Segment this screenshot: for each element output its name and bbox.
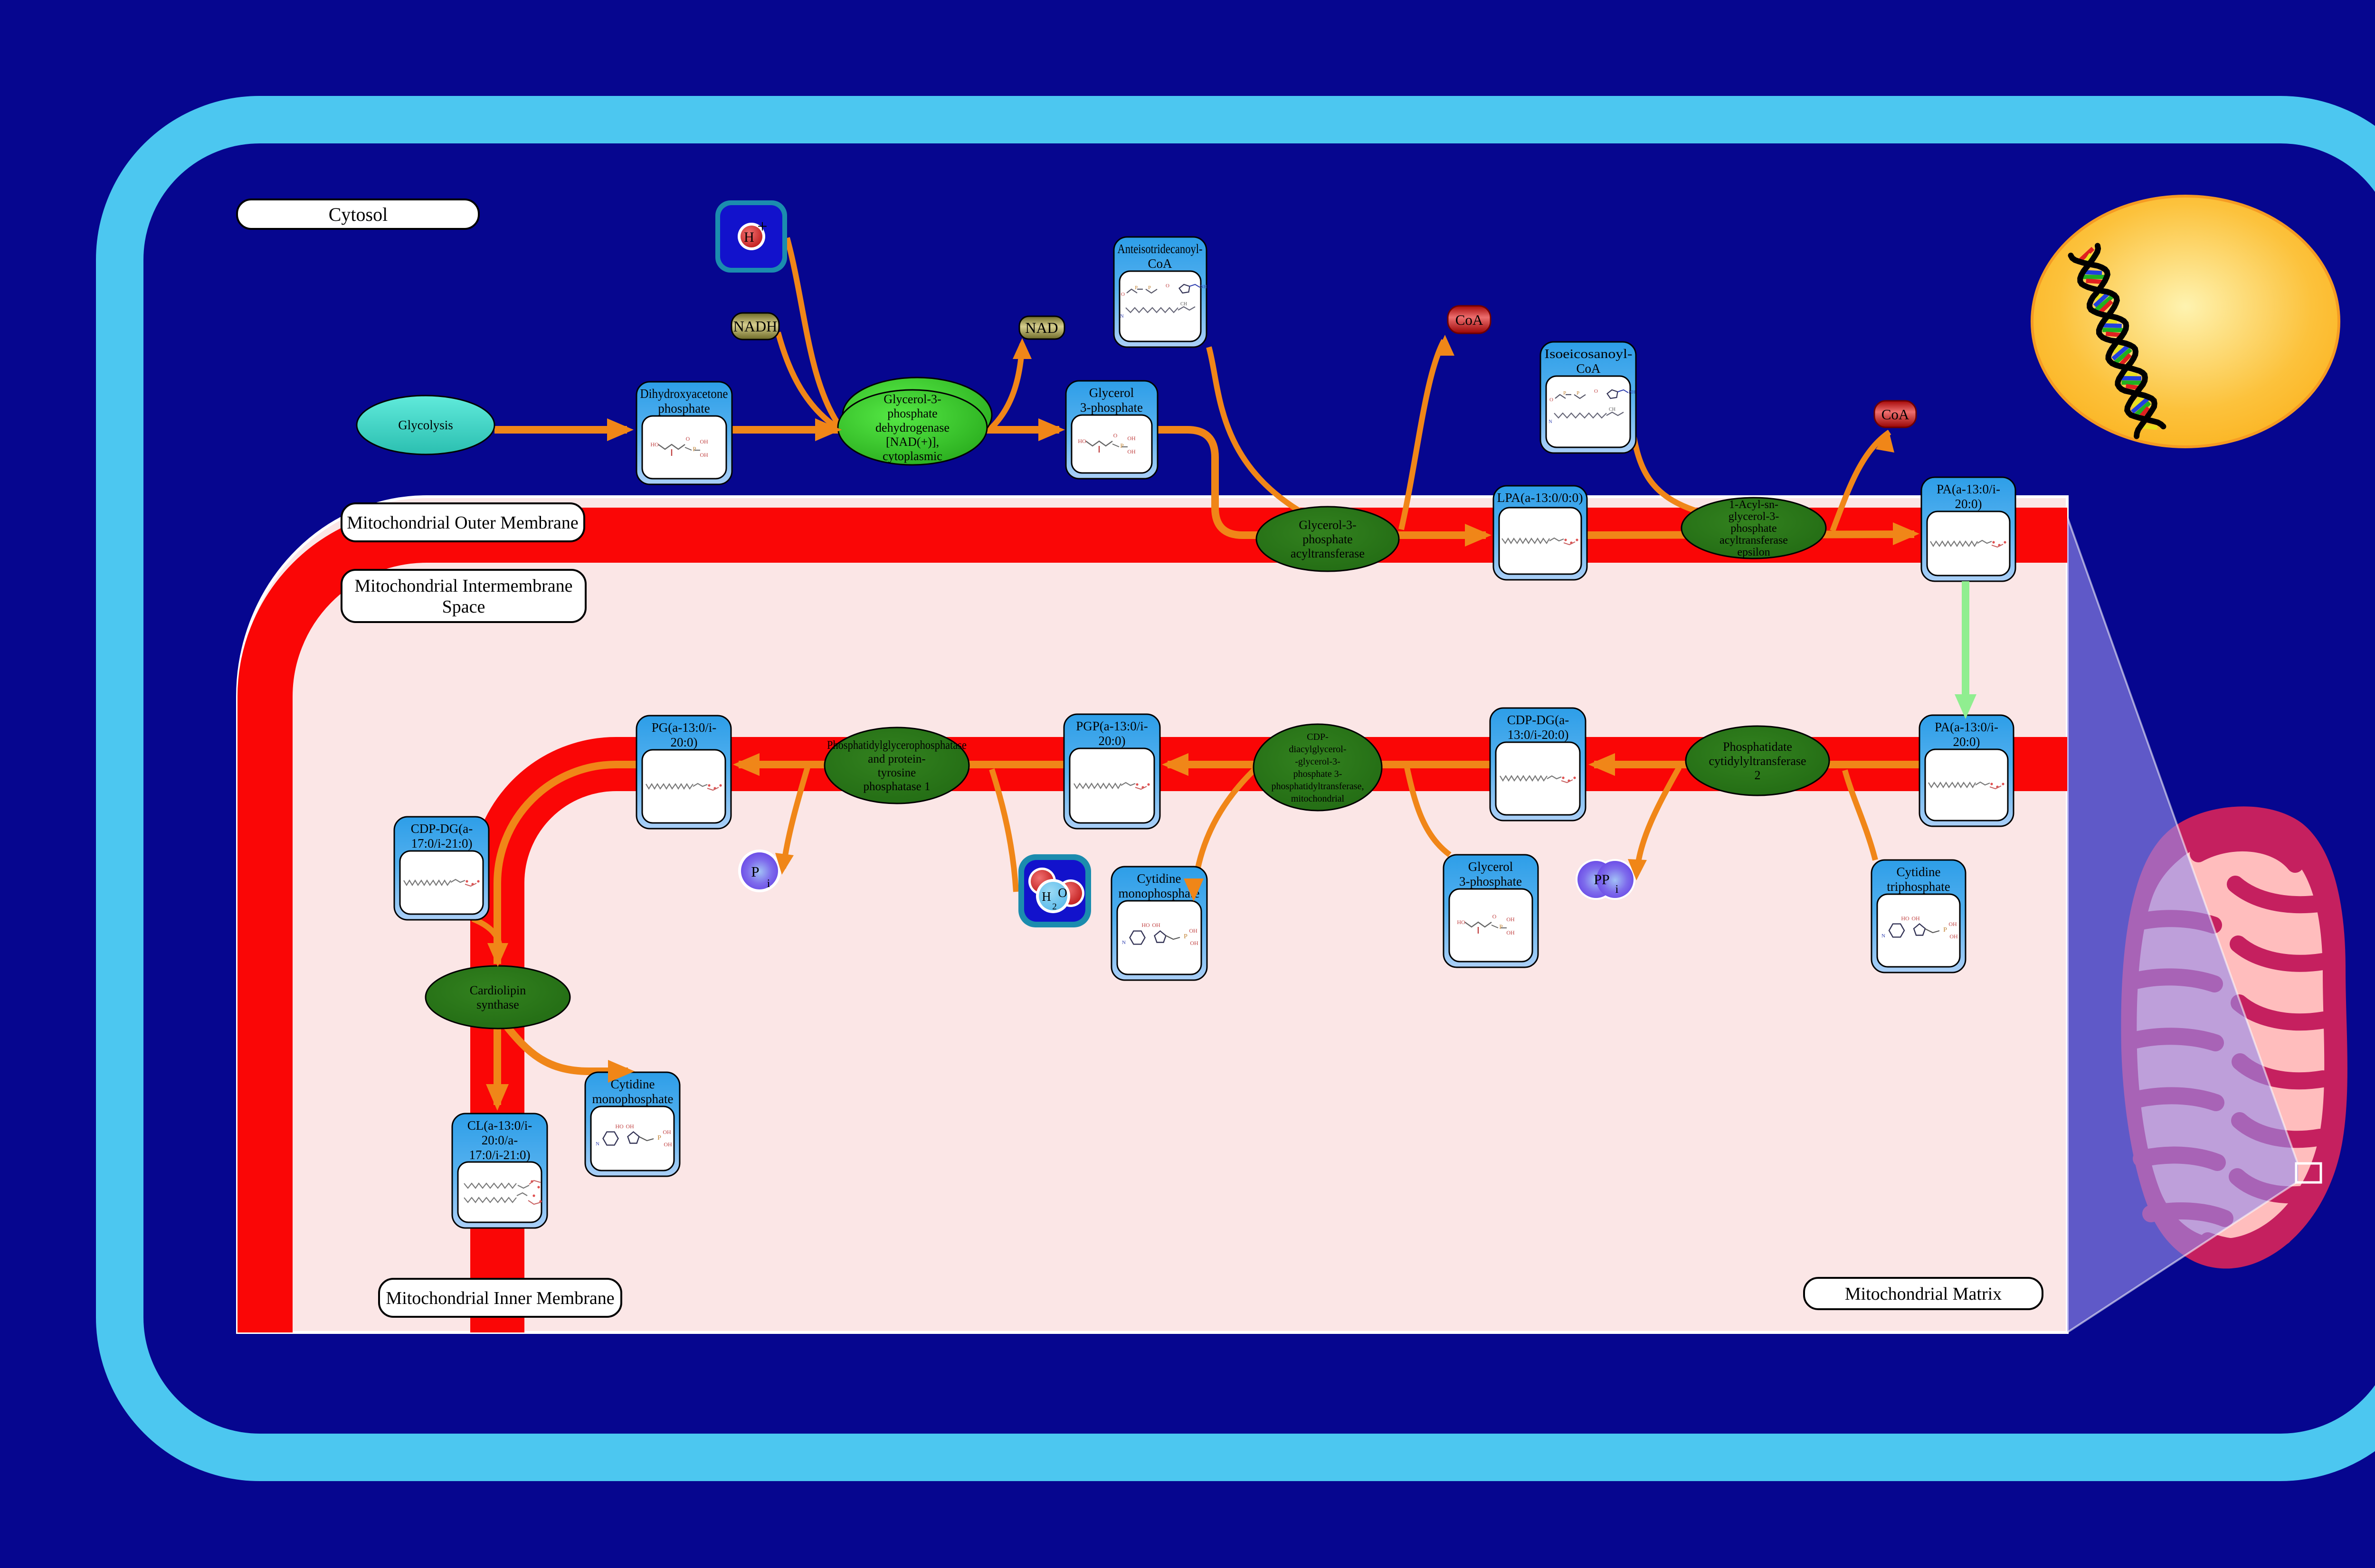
svg-text:phosphate: phosphate — [658, 401, 710, 416]
svg-text:OH: OH — [700, 452, 708, 458]
svg-text:Glycerol-3-: Glycerol-3- — [1299, 518, 1356, 532]
svg-text:Mitochondrial Outer Membrane: Mitochondrial Outer Membrane — [347, 513, 579, 533]
svg-text:OH: OH — [626, 1123, 634, 1130]
svg-text:glycerol-3-: glycerol-3- — [1729, 510, 1779, 523]
svg-text:Mitochondrial Intermembrane: Mitochondrial Intermembrane — [354, 576, 572, 596]
svg-text:CH: CH — [1609, 407, 1615, 412]
svg-text:tyrosine: tyrosine — [878, 766, 916, 779]
svg-text:+: + — [757, 217, 767, 236]
svg-text:3-phosphate: 3-phosphate — [1459, 874, 1522, 888]
svg-text:PA(a-13:0/i-: PA(a-13:0/i- — [1937, 482, 2000, 496]
svg-text:HO: HO — [1457, 919, 1465, 926]
svg-text:O: O — [1058, 886, 1067, 900]
svg-text:PGP(a-13:0/i-: PGP(a-13:0/i- — [1076, 719, 1148, 733]
svg-text:Space: Space — [442, 597, 485, 617]
svg-text:O: O — [686, 435, 690, 442]
svg-text:HO: HO — [1078, 438, 1086, 444]
svg-text:phosphate: phosphate — [1302, 532, 1352, 546]
svg-text:P: P — [1563, 390, 1566, 396]
svg-text:20:0): 20:0) — [1099, 734, 1126, 748]
svg-text:1-Acyl-sn-: 1-Acyl-sn- — [1729, 499, 1778, 511]
svg-text:epsilon: epsilon — [1737, 546, 1770, 558]
svg-text:P: P — [1148, 285, 1151, 291]
svg-text:phosphatidyltransferase,: phosphatidyltransferase, — [1272, 781, 1364, 792]
svg-text:dehydrogenase: dehydrogenase — [875, 421, 950, 435]
svg-text:acyltransferase: acyltransferase — [1291, 547, 1365, 560]
svg-text:Phosphatidate: Phosphatidate — [1723, 740, 1792, 754]
svg-text:OH: OH — [663, 1129, 671, 1135]
svg-text:CoA: CoA — [1455, 312, 1483, 328]
svg-text:13:0/i-20:0): 13:0/i-20:0) — [1508, 727, 1569, 742]
svg-text:P: P — [751, 863, 759, 880]
svg-text:PA(a-13:0/i-: PA(a-13:0/i- — [1935, 720, 1998, 734]
svg-text:Glycerol: Glycerol — [1468, 860, 1513, 874]
svg-text:CoA: CoA — [1576, 361, 1601, 376]
svg-text:P: P — [657, 1134, 661, 1142]
svg-text:CDP-DG(a-: CDP-DG(a- — [411, 822, 473, 836]
svg-text:NAD: NAD — [1025, 319, 1058, 336]
svg-text:HO: HO — [1141, 922, 1150, 928]
svg-text:Cytidine: Cytidine — [1137, 871, 1181, 886]
svg-text:H: H — [744, 229, 754, 245]
svg-text:20:0): 20:0) — [1955, 497, 1982, 511]
svg-text:NH: NH — [1629, 390, 1635, 395]
svg-text:O: O — [1121, 292, 1125, 297]
svg-text:Dihydroxyacetone: Dihydroxyacetone — [640, 387, 728, 401]
svg-text:P: P — [1135, 285, 1138, 291]
svg-text:monophosphate: monophosphate — [1119, 886, 1200, 900]
svg-text:CH: CH — [1180, 302, 1187, 307]
svg-text:Glycerol-3-: Glycerol-3- — [883, 392, 941, 406]
svg-text:OH: OH — [1911, 915, 1920, 922]
svg-text:phosphatase 1: phosphatase 1 — [864, 780, 931, 793]
svg-text:[NAD(+)],: [NAD(+)], — [886, 435, 939, 449]
svg-text:CDP-: CDP- — [1307, 732, 1329, 742]
svg-text:phosphate: phosphate — [887, 406, 937, 420]
svg-text:OH: OH — [1189, 927, 1197, 934]
svg-text:OH: OH — [1152, 922, 1160, 928]
svg-text:P: P — [1184, 933, 1187, 940]
svg-text:Cardiolipin: Cardiolipin — [470, 983, 526, 997]
svg-text:Glycerol: Glycerol — [1089, 386, 1134, 400]
svg-text:CoA: CoA — [1148, 256, 1172, 271]
svg-text:OH: OH — [1127, 435, 1136, 442]
svg-text:LPA(a-13:0/0:0): LPA(a-13:0/0:0) — [1497, 491, 1583, 505]
svg-text:cytoplasmic: cytoplasmic — [883, 449, 942, 463]
svg-text:diacylglycerol-: diacylglycerol- — [1289, 744, 1346, 755]
svg-text:2: 2 — [1755, 768, 1761, 782]
svg-text:O: O — [1492, 913, 1497, 920]
svg-text:PP: PP — [1594, 872, 1609, 888]
svg-text:N: N — [1881, 933, 1885, 939]
svg-text:20:0): 20:0) — [1953, 735, 1980, 749]
svg-text:cytidylyltransferase: cytidylyltransferase — [1709, 754, 1806, 768]
svg-text:Cytidine: Cytidine — [1897, 865, 1941, 879]
svg-text:and protein-: and protein- — [868, 753, 925, 765]
svg-text:OH: OH — [1190, 940, 1198, 946]
svg-text:Cytosol: Cytosol — [329, 204, 388, 225]
svg-text:O: O — [1594, 388, 1598, 394]
svg-text:monophosphate: monophosphate — [592, 1092, 674, 1106]
svg-text:CoA: CoA — [1881, 406, 1909, 423]
svg-text:acyltransferase: acyltransferase — [1719, 534, 1788, 547]
svg-text:phosphate: phosphate — [1730, 522, 1776, 535]
svg-text:20:0/a-: 20:0/a- — [482, 1133, 518, 1147]
svg-text:-glycerol-3-: -glycerol-3- — [1295, 756, 1340, 767]
svg-text:Isoeicosanoyl-: Isoeicosanoyl- — [1545, 347, 1633, 361]
svg-text:HO: HO — [650, 441, 659, 448]
svg-text:P: P — [1943, 926, 1947, 934]
svg-text:OH: OH — [1948, 921, 1957, 927]
svg-text:3-phosphate: 3-phosphate — [1080, 400, 1143, 415]
svg-text:N: N — [596, 1141, 599, 1147]
svg-text:OH: OH — [1506, 929, 1515, 936]
svg-text:OH: OH — [1506, 916, 1515, 923]
svg-text:i: i — [1615, 883, 1619, 896]
svg-text:17:0/i-21:0): 17:0/i-21:0) — [469, 1148, 531, 1162]
svg-text:NADH: NADH — [733, 318, 777, 335]
svg-text:17:0/i-21:0): 17:0/i-21:0) — [411, 836, 473, 850]
svg-text:O: O — [1549, 397, 1553, 403]
svg-text:phosphate 3-: phosphate 3- — [1293, 769, 1342, 779]
svg-text:Glycolysis: Glycolysis — [398, 418, 453, 432]
svg-text:N: N — [1548, 419, 1552, 425]
svg-text:Anteisotridecanoyl-: Anteisotridecanoyl- — [1118, 242, 1203, 256]
svg-text:OH: OH — [664, 1141, 672, 1148]
svg-text:P: P — [1499, 923, 1502, 930]
svg-text:NH: NH — [1200, 284, 1207, 290]
svg-text:Cytidine: Cytidine — [611, 1077, 655, 1091]
svg-text:HO: HO — [1901, 915, 1909, 922]
svg-text:HO: HO — [615, 1123, 624, 1130]
svg-text:CDP-DG(a-: CDP-DG(a- — [1507, 713, 1569, 727]
svg-text:2: 2 — [1052, 902, 1057, 912]
svg-text:20:0): 20:0) — [671, 735, 698, 749]
svg-text:CL(a-13:0/i-: CL(a-13:0/i- — [467, 1118, 532, 1133]
svg-text:Mitochondrial Inner Membrane: Mitochondrial Inner Membrane — [386, 1288, 614, 1308]
svg-text:OH: OH — [1127, 448, 1136, 455]
svg-text:O: O — [1113, 432, 1118, 439]
svg-text:H: H — [1042, 889, 1051, 904]
svg-text:mitochondrial: mitochondrial — [1291, 793, 1345, 804]
svg-text:OH: OH — [1949, 933, 1958, 940]
svg-text:Phosphatidylglycerophosphatase: Phosphatidylglycerophosphatase — [827, 739, 967, 752]
svg-text:OH: OH — [700, 438, 708, 445]
svg-text:i: i — [767, 878, 770, 890]
svg-text:synthase: synthase — [476, 998, 519, 1011]
svg-text:N: N — [1122, 940, 1126, 945]
svg-text:P: P — [1577, 390, 1579, 396]
svg-text:triphosphate: triphosphate — [1887, 879, 1950, 894]
svg-text:P: P — [1120, 442, 1123, 449]
svg-text:O: O — [1166, 283, 1169, 289]
svg-text:Mitochondrial Matrix: Mitochondrial Matrix — [1845, 1284, 2002, 1304]
svg-text:P: P — [693, 445, 696, 453]
svg-text:PG(a-13:0/i-: PG(a-13:0/i- — [652, 720, 716, 735]
svg-text:N: N — [1120, 314, 1123, 319]
